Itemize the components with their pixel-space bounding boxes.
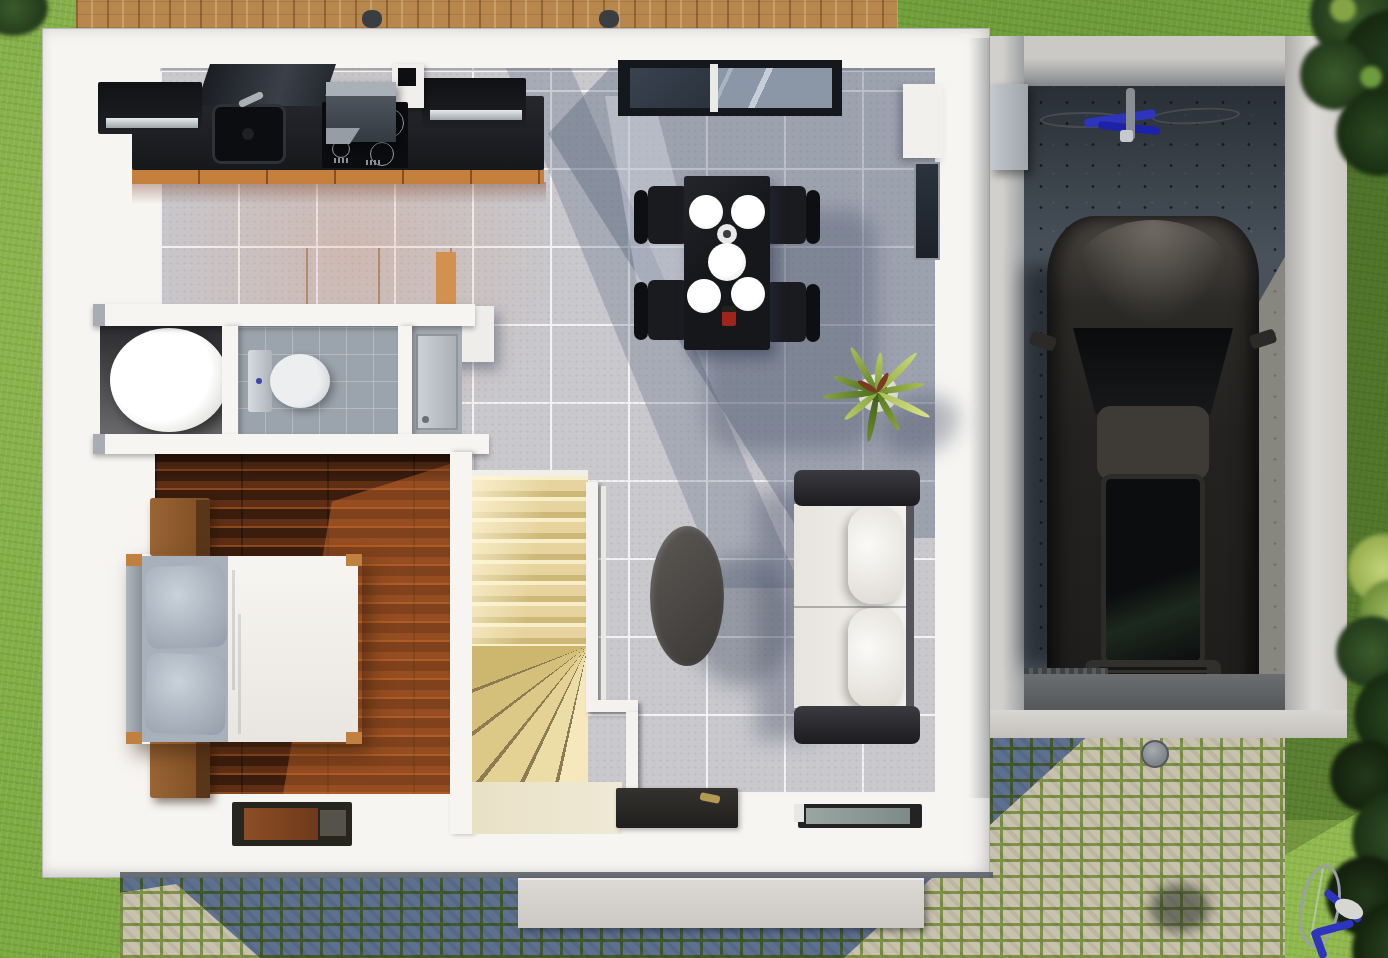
hood-glass-panel bbox=[196, 64, 336, 106]
wooden-deck bbox=[76, 0, 898, 30]
wall-cap bbox=[93, 434, 105, 454]
dining-chair bbox=[648, 186, 688, 244]
car-rear-glass bbox=[1101, 474, 1205, 666]
drain-cap bbox=[1141, 740, 1169, 768]
chair-back bbox=[806, 190, 820, 244]
car bbox=[1047, 216, 1259, 706]
floor-plan-scene bbox=[0, 0, 1388, 958]
dining-chair bbox=[648, 280, 688, 340]
car-hood-shine bbox=[1075, 220, 1231, 324]
burner-controls bbox=[334, 158, 348, 163]
sofa bbox=[794, 470, 920, 744]
nightstand-side bbox=[196, 500, 210, 556]
plate bbox=[689, 195, 723, 229]
chair-back bbox=[634, 282, 648, 340]
wood-floor-shadow bbox=[155, 454, 460, 480]
toilet-bowl bbox=[270, 354, 330, 408]
plate bbox=[731, 195, 765, 229]
chair-back bbox=[634, 190, 648, 244]
stair-winder bbox=[472, 646, 588, 804]
plant bbox=[830, 340, 950, 450]
chair-back bbox=[806, 284, 820, 342]
bed-frame-post bbox=[346, 554, 362, 566]
window-mullion bbox=[710, 64, 718, 112]
round-tub bbox=[110, 328, 228, 432]
window-pane bbox=[630, 68, 710, 108]
counter-shadow bbox=[132, 182, 546, 204]
serving-bowl bbox=[708, 243, 746, 281]
stair-light bbox=[472, 476, 588, 646]
wall-cap bbox=[93, 304, 105, 326]
sofa-armrest bbox=[794, 470, 920, 506]
duvet-fold bbox=[232, 570, 235, 690]
vent-opening bbox=[398, 68, 416, 86]
garage-apron bbox=[988, 710, 1347, 738]
door-handle bbox=[422, 416, 429, 423]
stair-wall bbox=[450, 452, 472, 834]
bathroom bbox=[90, 300, 500, 460]
duvet-fold bbox=[238, 614, 241, 734]
door-hinge bbox=[794, 804, 804, 822]
bed bbox=[126, 554, 362, 744]
bike-pedal bbox=[1120, 130, 1133, 142]
coffee-table bbox=[650, 526, 724, 666]
side-window bbox=[914, 162, 940, 260]
range-hood-top bbox=[326, 82, 396, 96]
sofa-seat-seam bbox=[794, 606, 906, 608]
dining-chair bbox=[766, 282, 806, 342]
staircase bbox=[450, 452, 640, 834]
bed-pillow bbox=[145, 565, 228, 650]
sofa-back-cushion bbox=[848, 608, 904, 708]
window-pane bbox=[718, 68, 832, 108]
glass-door-glass bbox=[806, 808, 910, 824]
bed-pillow bbox=[145, 653, 228, 736]
mat-tray bbox=[320, 810, 346, 836]
small-bowl-hole bbox=[723, 230, 731, 238]
toilet-button bbox=[256, 378, 262, 384]
bed-duvet bbox=[228, 556, 358, 742]
wall bbox=[93, 434, 489, 454]
bed-frame-post bbox=[126, 732, 142, 744]
wall bbox=[398, 326, 412, 436]
deck-post bbox=[362, 10, 382, 28]
sofa-back-cushion bbox=[848, 506, 904, 604]
dining-set bbox=[620, 160, 840, 370]
sofa-armrest bbox=[794, 706, 920, 744]
dining-chair bbox=[766, 186, 806, 244]
bicycle-icon bbox=[1040, 88, 1240, 148]
bed-frame-post bbox=[346, 732, 362, 744]
bicycle-icon bbox=[1294, 854, 1388, 958]
burner-controls bbox=[366, 160, 382, 165]
hallway bbox=[600, 780, 940, 840]
mat-inner bbox=[244, 808, 318, 840]
entrance-step bbox=[518, 878, 924, 928]
front-door-mat bbox=[616, 788, 738, 828]
door-mat bbox=[232, 802, 352, 846]
plate bbox=[731, 277, 765, 311]
bed-headboard bbox=[126, 554, 142, 744]
car-windshield bbox=[1073, 328, 1233, 414]
house-right-wall-shade bbox=[968, 38, 990, 798]
cobble-shadow bbox=[1150, 884, 1210, 932]
plate bbox=[687, 279, 721, 313]
cabinet-handle bbox=[430, 110, 522, 120]
nightstand-side bbox=[196, 742, 210, 798]
sink-drain bbox=[242, 128, 254, 140]
stair-railing-inner bbox=[601, 486, 606, 702]
candle-red bbox=[722, 306, 736, 326]
bathroom-door bbox=[416, 334, 458, 430]
stair-railing bbox=[586, 700, 638, 712]
bed-frame-post bbox=[126, 554, 142, 566]
cabinet-handle bbox=[106, 118, 198, 128]
bike-wheel bbox=[1152, 106, 1241, 127]
garage-ramp bbox=[1024, 674, 1285, 710]
trees-top-right bbox=[1290, 0, 1388, 230]
deck-post bbox=[599, 10, 619, 28]
stair-railing bbox=[586, 482, 598, 708]
wall bbox=[222, 326, 238, 436]
car-roof bbox=[1097, 406, 1209, 480]
wall-vent-box bbox=[903, 84, 943, 158]
garage-cabinet bbox=[990, 84, 1028, 170]
wall bbox=[93, 304, 475, 326]
wall-cabinet bbox=[422, 78, 526, 132]
leaf-highlight bbox=[1360, 66, 1382, 88]
bedroom bbox=[97, 454, 462, 846]
